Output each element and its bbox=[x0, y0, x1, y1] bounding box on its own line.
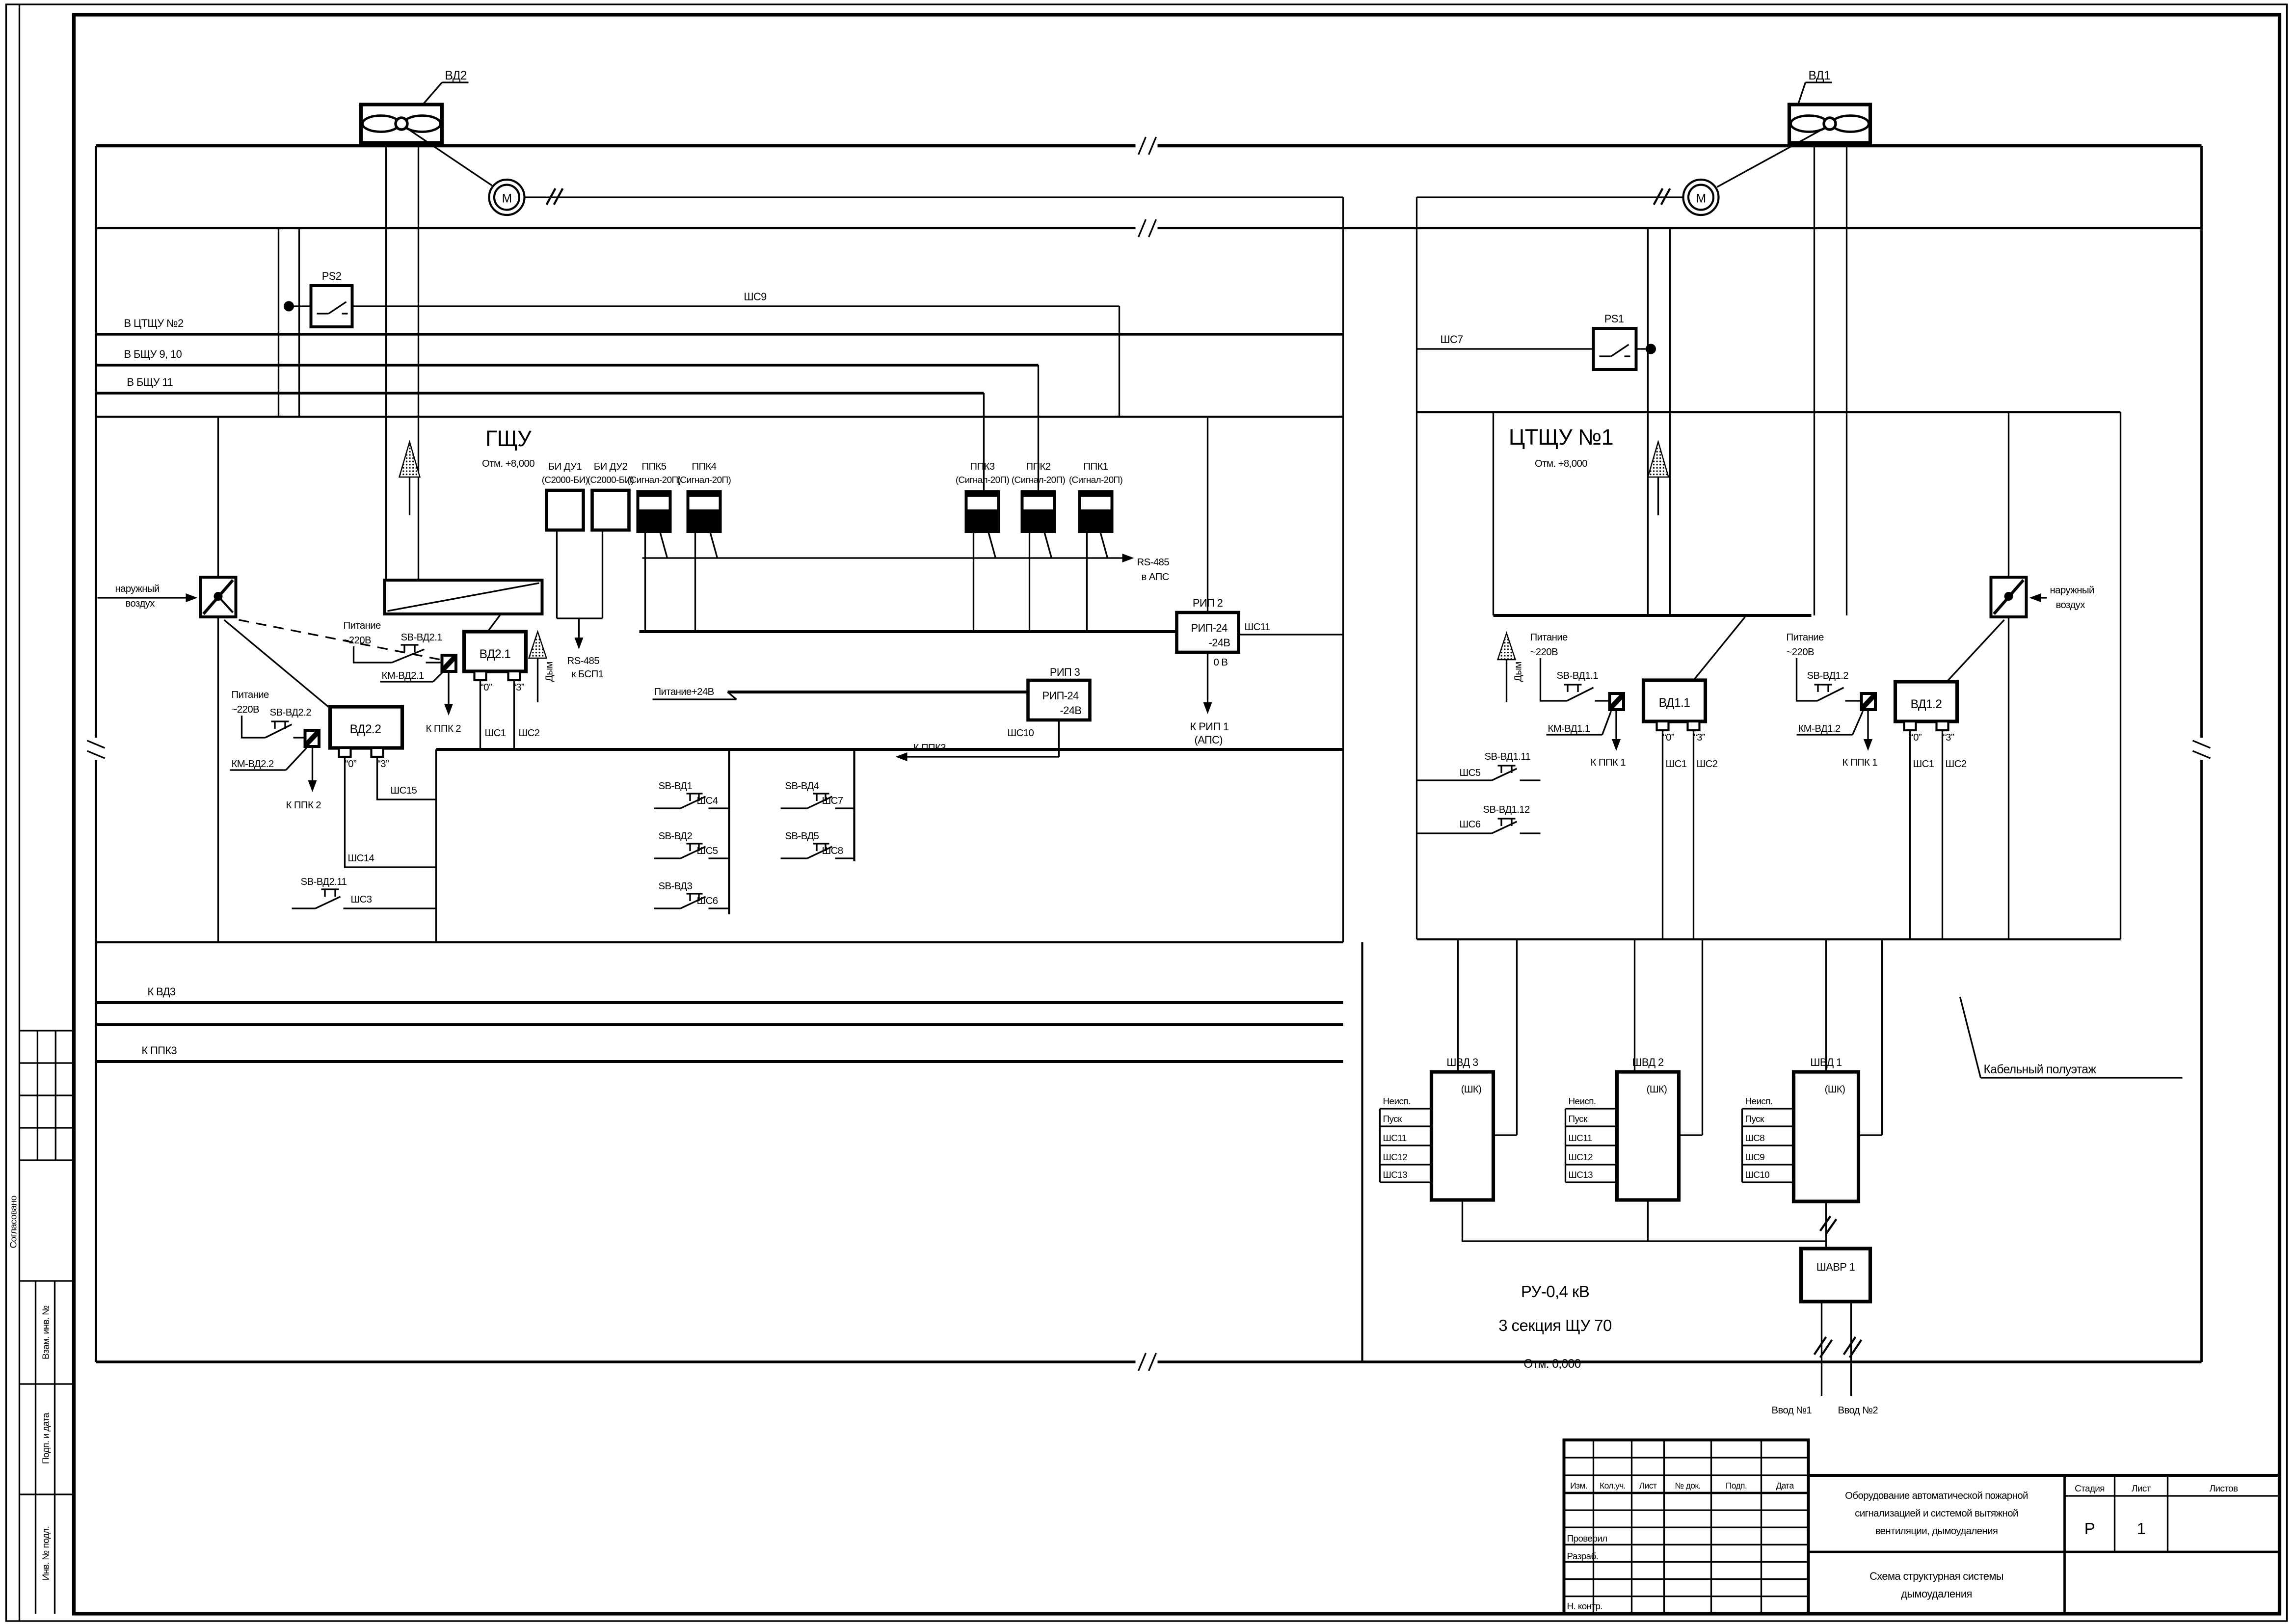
pressure-switch-icon bbox=[1594, 328, 1636, 370]
tb-row: Разраб. bbox=[1567, 1551, 1599, 1562]
to-ppk2-label: К ППК 2 bbox=[426, 723, 461, 734]
shavr-vvod2: Ввод №2 bbox=[1838, 1405, 1878, 1416]
row-label: ШС12 bbox=[1383, 1152, 1408, 1163]
km-vd21-label: КМ-ВД2.1 bbox=[382, 670, 424, 681]
block-bi-du1: БИ ДУ1 (С2000-БИ) bbox=[542, 461, 588, 530]
row-label: ШС12 bbox=[1569, 1152, 1593, 1163]
rip3-unit: РИП 3 РИП-24 -24В К ППК3 ШС10 bbox=[896, 666, 1090, 761]
air-arrow-up-icon bbox=[1648, 442, 1669, 477]
ps1-switch: ШС7 PS1 bbox=[1417, 228, 1670, 615]
bus-bshu11-label: В БЩУ 11 bbox=[127, 376, 173, 388]
tb-col: Лист bbox=[1639, 1481, 1657, 1491]
shvd1-cabinet: ШВД 1 (ШК) Неисп. Пуск ШС8 ШС9 ШС10 bbox=[1742, 939, 1882, 1249]
term3-label: “3” bbox=[1694, 732, 1706, 743]
row-label: Неисп. bbox=[1383, 1096, 1411, 1107]
rip2-unit: РИП 2 РИП-24 -24В ШС11 0 В К РИП 1 (АПС) bbox=[1177, 417, 1343, 746]
shvd1-shk: (ШК) bbox=[1825, 1084, 1845, 1095]
outside-air-l2: воздух bbox=[126, 598, 155, 609]
tb-col: Изм. bbox=[1570, 1481, 1587, 1491]
km-vd11-label: КМ-ВД1.1 bbox=[1548, 723, 1590, 734]
outside-air-l1: наружный bbox=[115, 584, 160, 594]
margin-vzam: Взам. инв. № bbox=[41, 1305, 52, 1359]
cable-floor: Кабельный полуэтаж bbox=[1960, 997, 2183, 1078]
ru-l1: РУ-0,4 кВ bbox=[1521, 1282, 1589, 1301]
shs-label: ШС4 bbox=[697, 796, 718, 806]
cshu-title: ЦТЩУ №1 bbox=[1509, 425, 1613, 450]
outside-air-l2: воздух bbox=[2056, 600, 2085, 611]
row-label: ШС9 bbox=[1745, 1152, 1765, 1163]
shvd3-title: ШВД 3 bbox=[1446, 1056, 1478, 1068]
sb-vd211-label: SB-ВД2.11 bbox=[301, 877, 347, 887]
arrow-down-icon bbox=[308, 780, 317, 792]
arrow-down-icon bbox=[1864, 739, 1872, 751]
power-label-2: ~220В bbox=[1530, 647, 1558, 658]
tb-sheets-h: Листов bbox=[2210, 1484, 2238, 1494]
rs485-bsp-l2: к БСП1 bbox=[572, 669, 604, 680]
arrow-right-icon bbox=[1122, 554, 1134, 562]
row-label: Пуск bbox=[1383, 1114, 1402, 1124]
cable-floor-label: Кабельный полуэтаж bbox=[1984, 1063, 2097, 1076]
row-label: ШС11 bbox=[1569, 1133, 1592, 1144]
drawing-sheet: Согласовано Взам. инв. № Подп. и дата Ин… bbox=[0, 0, 2296, 1624]
sb-vd1-switch: SB-ВД1 ШС4 bbox=[654, 781, 729, 808]
sb-vd11-label: SB-ВД1.1 bbox=[1557, 670, 1599, 681]
power-label-2: ~220В bbox=[1787, 647, 1815, 658]
block-type: (С2000-БИ) bbox=[542, 475, 588, 485]
arrow-down-icon bbox=[444, 704, 453, 716]
term0-label: “0” bbox=[1910, 732, 1922, 743]
block-type: (Сигнал-20П) bbox=[1012, 475, 1066, 485]
tb-stage-h: Стадия bbox=[2075, 1484, 2105, 1494]
block-ppk1: ППК1 (Сигнал-20П) bbox=[1069, 461, 1123, 532]
vd11-box-label: ВД1.1 bbox=[1659, 696, 1690, 710]
row-label: Пуск bbox=[1745, 1114, 1764, 1124]
term3-label: “3” bbox=[1943, 732, 1954, 743]
fan-vd1: ВД1 М bbox=[1417, 69, 1870, 615]
kppk3-label: К ППК3 bbox=[142, 1044, 177, 1057]
smoke-label: Дым bbox=[544, 662, 555, 682]
vd22-box-label: ВД2.2 bbox=[350, 723, 381, 736]
shvd3-cabinet: ШВД 3 (ШК) Неисп. Пуск ШС11 ШС12 ШС13 bbox=[1380, 939, 1826, 1241]
arrow-left-icon bbox=[2029, 593, 2041, 602]
row-label: ШС8 bbox=[1745, 1133, 1765, 1144]
arrow-down-icon bbox=[1612, 739, 1621, 751]
outside-air-right: наружный воздух bbox=[1991, 412, 2094, 939]
block-name: ППК3 bbox=[970, 461, 994, 472]
shvd3-shk: (ШК) bbox=[1461, 1084, 1482, 1095]
tb-scheme-title: дымоудаления bbox=[1901, 1588, 1972, 1600]
rip3-title: РИП 3 bbox=[1050, 666, 1080, 678]
margin-stamp: Согласовано Взам. инв. № Подп. и дата Ин… bbox=[9, 1031, 74, 1614]
row-label: Неисп. bbox=[1569, 1096, 1596, 1107]
shs-label: ШС5 bbox=[697, 846, 718, 856]
ps2-label: PS2 bbox=[322, 270, 342, 282]
gshu-inner-bus bbox=[436, 749, 1343, 914]
shs9-label: ШС9 bbox=[744, 291, 767, 303]
tb-doc-title: Оборудование автоматической пожарной bbox=[1845, 1491, 2028, 1501]
sheet-frame bbox=[6, 4, 2287, 1621]
ru-l2: 3 секция ЩУ 70 bbox=[1498, 1316, 1612, 1334]
block-name: ППК1 bbox=[1083, 461, 1108, 472]
sb-vd12-label: SB-ВД1.2 bbox=[1807, 670, 1849, 681]
margin-soglasovano: Согласовано bbox=[9, 1196, 19, 1248]
ru-label: РУ-0,4 кВ 3 секция ЩУ 70 Отм. 0,000 bbox=[1498, 1282, 1612, 1371]
margin-podp: Подп. и дата bbox=[41, 1412, 52, 1464]
air-arrow-up-icon bbox=[400, 442, 420, 477]
term0-label: “0” bbox=[345, 759, 357, 770]
block-name: ППК4 bbox=[692, 461, 716, 472]
block-name: БИ ДУ2 bbox=[594, 461, 628, 472]
break-marks bbox=[86, 135, 2212, 1372]
term0-label: “0” bbox=[481, 682, 492, 693]
tb-row: Н. контр. bbox=[1567, 1601, 1603, 1612]
arrow-left-icon bbox=[896, 752, 908, 761]
row-label: ШС11 bbox=[1383, 1133, 1407, 1144]
tb-doc-title: вентиляции, дымоудаления bbox=[1875, 1526, 1998, 1537]
sb-label: SB-ВД4 bbox=[785, 781, 819, 792]
block-ppk3: ППК3 (Сигнал-20П) bbox=[956, 461, 1010, 532]
gshu-elev: Отм. +8,000 bbox=[482, 458, 534, 469]
shvd2-cabinet: ШВД 2 (ШК) Неисп. Пуск ШС11 ШС12 ШС13 bbox=[1566, 939, 1703, 1241]
margin-inv: Инв. № подл. bbox=[41, 1526, 52, 1580]
sb-label: SB-ВД1 bbox=[659, 781, 693, 792]
tb-col: Подп. bbox=[1726, 1481, 1747, 1491]
sb-vd112-label: SB-ВД1.12 bbox=[1483, 804, 1530, 815]
km-vd12-label: КМ-ВД1.2 bbox=[1798, 723, 1841, 734]
shs-label: ШС6 bbox=[697, 896, 718, 906]
tb-sheet-value: 1 bbox=[2137, 1519, 2146, 1538]
block-name: ППК5 bbox=[641, 461, 666, 472]
row-label: ШС13 bbox=[1383, 1170, 1408, 1180]
shs15-label: ШС15 bbox=[391, 785, 417, 796]
gshu-title: ГЩУ bbox=[485, 426, 532, 451]
block-name: БИ ДУ1 bbox=[548, 461, 582, 472]
fan-vd2-label: ВД2 bbox=[445, 69, 467, 82]
sb-label: SB-ВД2 bbox=[659, 831, 693, 842]
rs485-bsp-l1: RS-485 bbox=[567, 656, 600, 666]
km-vd22-label: КМ-ВД2.2 bbox=[232, 759, 274, 770]
ps1-label: PS1 bbox=[1604, 313, 1624, 325]
junction-dot bbox=[284, 301, 294, 312]
smoke-arrow-icon bbox=[1498, 633, 1516, 660]
rip2-shs11: ШС11 bbox=[1245, 622, 1270, 633]
block-type: (Сигнал-20П) bbox=[1069, 475, 1123, 485]
rip3-shs10: ШС10 bbox=[1008, 728, 1034, 739]
term0-label: “0” bbox=[1663, 732, 1675, 743]
row-label: Неисп. bbox=[1745, 1096, 1773, 1107]
sb-right-group: SB-ВД1.11 ШС5 SB-ВД1.12 ШС6 bbox=[1417, 751, 1541, 833]
sb-vd4-switch: SB-ВД4 ШС7 bbox=[781, 781, 854, 808]
sb-vd22-label: SB-ВД2.2 bbox=[270, 707, 312, 718]
smoke-label: Дым bbox=[1513, 662, 1524, 682]
block-type: (Сигнал-20П) bbox=[627, 475, 681, 485]
block-ppk4: ППК4 (Сигнал-20П) bbox=[677, 461, 731, 532]
row-label: ШС13 bbox=[1569, 1170, 1593, 1180]
tb-stage-value: Р bbox=[2084, 1519, 2095, 1538]
shs2-label: ШС2 bbox=[1697, 759, 1718, 770]
vd21-box-label: ВД2.1 bbox=[480, 648, 511, 661]
rs485-wiring: RS-485 к БСП1 RS-485 в АПС Питание+24В bbox=[557, 530, 1177, 699]
vd11-assembly: Питание ~220В SB-ВД1.1 КМ-ВД1.1 К ППК 1 … bbox=[1498, 617, 1745, 939]
power-label-2: ~220В bbox=[344, 635, 372, 646]
shvd2-shk: (ШК) bbox=[1647, 1084, 1667, 1095]
shs5-label: ШС5 bbox=[1460, 768, 1481, 778]
tb-col: Кол.уч. bbox=[1600, 1481, 1626, 1491]
shs1-label: ШС1 bbox=[1666, 759, 1687, 770]
pressure-switch-icon bbox=[311, 286, 352, 327]
shavr-cabinet: ШАВР 1 Ввод №1 Ввод №2 bbox=[1772, 1249, 1878, 1416]
power-label-2: ~220В bbox=[232, 704, 260, 715]
sb-vd5-switch: SB-ВД5 ШС8 bbox=[781, 831, 854, 858]
to-ppk2-label: К ППК 2 bbox=[286, 800, 321, 811]
rip2-title: РИП 2 bbox=[1193, 597, 1223, 609]
arrow-down-icon bbox=[1203, 702, 1212, 714]
bottom-buses: К ВД3 К ППК3 bbox=[96, 985, 1343, 1062]
cshu-elev: Отм. +8,000 bbox=[1535, 458, 1587, 469]
shs1-label: ШС1 bbox=[1913, 759, 1934, 770]
shavr-vvod1: Ввод №1 bbox=[1772, 1405, 1812, 1416]
to-ppk1-label: К ППК 1 bbox=[1842, 757, 1878, 768]
panel-blocks: БИ ДУ1 (С2000-БИ) БИ ДУ2 (С2000-БИ) ППК5… bbox=[542, 461, 1123, 532]
block-ppk2: ППК2 (Сигнал-20П) bbox=[1012, 461, 1066, 532]
bus-ctshu2-label: В ЦТЩУ №2 bbox=[124, 317, 184, 329]
tb-col: № док. bbox=[1675, 1481, 1700, 1491]
rip3-line1: РИП-24 bbox=[1042, 690, 1079, 702]
arrow-right-icon bbox=[186, 593, 198, 602]
block-ppk5: ППК5 (Сигнал-20П) bbox=[627, 461, 681, 532]
rip2-line1: РИП-24 bbox=[1191, 622, 1228, 634]
rip2-to1: К РИП 1 bbox=[1190, 720, 1229, 733]
vd12-box-label: ВД1.2 bbox=[1911, 698, 1942, 711]
smoke-arrow-icon bbox=[529, 632, 547, 658]
outside-air-l1: наружный bbox=[2050, 585, 2094, 596]
vd22-assembly: Питание ~220В SB-ВД2.2 КМ-ВД2.2 К ППК 2 … bbox=[230, 690, 436, 942]
sb-vd2-switch: SB-ВД2 ШС5 bbox=[654, 831, 729, 858]
tb-col: Дата bbox=[1776, 1481, 1794, 1491]
rip2-zero: 0 В bbox=[1214, 657, 1228, 668]
power-label-1: Питание bbox=[232, 690, 269, 700]
shs6-label: ШС6 bbox=[1460, 819, 1481, 830]
shs14-label: ШС14 bbox=[348, 853, 374, 864]
row-label: ШС10 bbox=[1745, 1170, 1770, 1180]
rs485-aps-l1: RS-485 bbox=[1137, 557, 1170, 568]
sb-label: SB-ВД3 bbox=[659, 881, 693, 892]
block-type: (Сигнал-20П) bbox=[677, 475, 731, 485]
block-bi-du2: БИ ДУ2 (С2000-БИ) bbox=[587, 461, 634, 530]
power-label-1: Питание bbox=[1530, 632, 1568, 643]
sb-label: SB-ВД5 bbox=[785, 831, 819, 842]
rip2-to2: (АПС) bbox=[1195, 734, 1223, 746]
row-label: Пуск bbox=[1569, 1114, 1588, 1124]
kvd3-label: К ВД3 bbox=[148, 985, 176, 998]
shs3-label: ШС3 bbox=[351, 894, 372, 905]
sb-vd21-label: SB-ВД2.1 bbox=[401, 632, 443, 643]
shs2-label: ШС2 bbox=[519, 728, 540, 739]
rip3-line2: -24В bbox=[1060, 704, 1082, 717]
motor-label: М bbox=[502, 192, 512, 206]
top-bus-labels: В ЦТЩУ №2 В БЩУ 9, 10 В БЩУ 11 bbox=[96, 317, 1343, 492]
shavr-title: ШАВР 1 bbox=[1816, 1261, 1855, 1273]
shs7-label: ШС7 bbox=[1441, 333, 1464, 346]
bus-bshu910-label: В БЩУ 9, 10 bbox=[124, 348, 182, 360]
fan-vd1-label: ВД1 bbox=[1809, 69, 1830, 82]
tb-sheet-h: Лист bbox=[2132, 1484, 2151, 1494]
vd12-assembly: Питание ~220В SB-ВД1.2 КМ-ВД1.2 К ППК 1 … bbox=[1787, 620, 2004, 939]
ru-l3: Отм. 0,000 bbox=[1523, 1358, 1580, 1371]
shvd1-title: ШВД 1 bbox=[1810, 1056, 1842, 1068]
term3-label: “3” bbox=[377, 759, 389, 770]
block-type: (Сигнал-20П) bbox=[956, 475, 1010, 485]
motor-label: М bbox=[1696, 192, 1706, 206]
power-label-1: Питание bbox=[1787, 632, 1824, 643]
to-ppk1-label: К ППК 1 bbox=[1591, 757, 1626, 768]
tb-row: Проверил bbox=[1567, 1534, 1607, 1544]
block-name: ППК2 bbox=[1026, 461, 1050, 472]
sb-center-group: SB-ВД1 ШС4 SB-ВД2 ШС5 SB-ВД3 ШС6 SB-ВД4 … bbox=[654, 781, 854, 908]
sb-vd3-switch: SB-ВД3 ШС6 bbox=[654, 881, 729, 908]
rs485-aps-l2: в АПС bbox=[1142, 572, 1169, 583]
sb-vd111-label: SB-ВД1.11 bbox=[1485, 751, 1531, 762]
building-outline bbox=[96, 146, 2202, 1362]
power-label-1: Питание bbox=[344, 620, 381, 631]
rip2-line2: -24В bbox=[1209, 637, 1230, 649]
tb-scheme-title: Схема структурная системы bbox=[1869, 1570, 2003, 1582]
arrow-down-icon bbox=[575, 638, 584, 649]
shs1-label: ШС1 bbox=[485, 728, 506, 739]
tb-doc-title: сигнализацией и системой вытяжной bbox=[1855, 1508, 2018, 1519]
shs2-label: ШС2 bbox=[1946, 759, 1967, 770]
title-block: Изм. Кол.уч. Лист № док. Подп. Дата Пров… bbox=[1564, 1440, 2280, 1614]
shvd2-title: ШВД 2 bbox=[1632, 1056, 1664, 1068]
power24-label: Питание+24В bbox=[654, 687, 714, 697]
ps2-switch: PS2 ШС9 bbox=[279, 228, 1120, 417]
